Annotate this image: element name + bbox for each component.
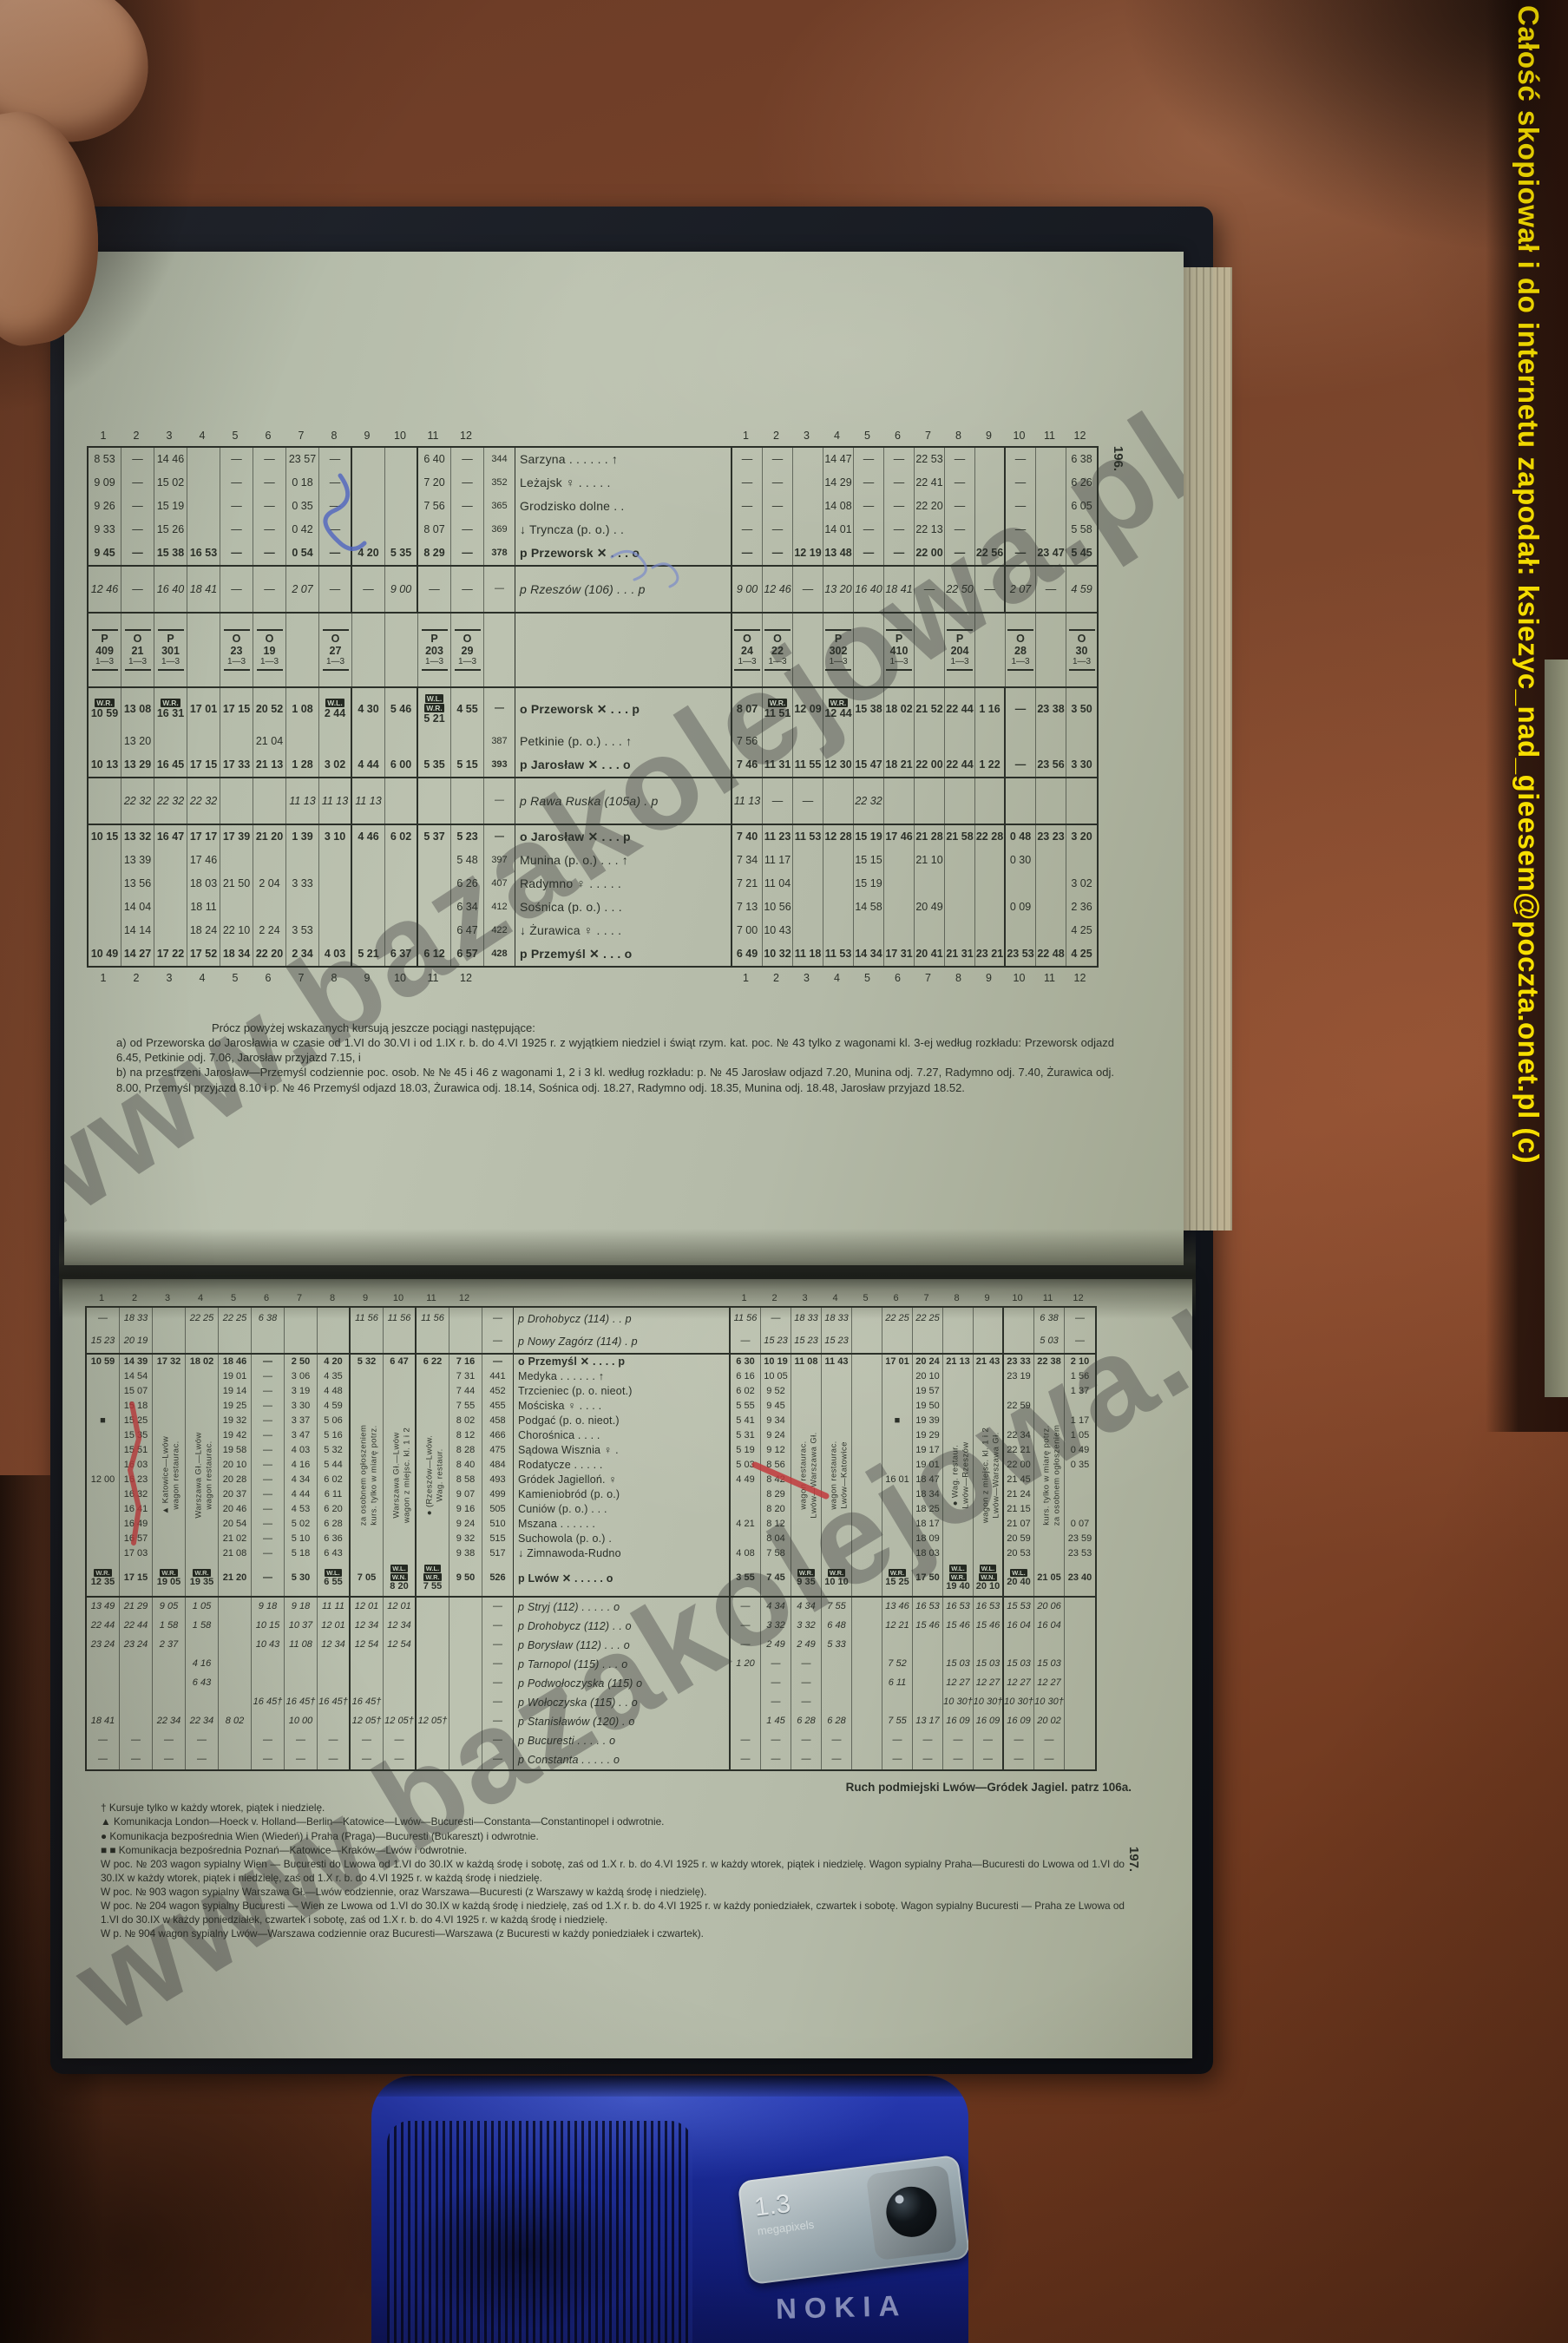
- train-number-cell: P2031—3: [418, 614, 451, 686]
- time-cell: 20 06: [1034, 1598, 1065, 1617]
- time-cell: 0 09: [1006, 896, 1036, 919]
- column-number: 7: [913, 425, 943, 446]
- km-cell: —: [482, 1355, 514, 1369]
- footnote: ■ ■ Komunikacja bezpośrednia Poznań—Kato…: [101, 1844, 1125, 1857]
- station-cell: p Constanta . . . . . o: [514, 1750, 731, 1769]
- train-number-cell: P2041—3: [945, 614, 975, 686]
- wagon-badge: W.R.: [889, 1569, 906, 1577]
- train-number-box: P4101—3: [886, 629, 912, 672]
- time-cell: —: [451, 448, 484, 471]
- time-value: 7 55: [423, 1582, 442, 1592]
- time-cell: [351, 1655, 384, 1674]
- timetable-row: 22 3222 3222 3211 1311 1311 13—p Rawa Ru…: [89, 778, 1097, 824]
- time-cell: [945, 730, 975, 753]
- time-cell: [882, 1502, 913, 1517]
- time-cell: 8 40: [449, 1458, 482, 1473]
- time-cell: [285, 1655, 318, 1674]
- vertical-label: za osobnem ogłoszeniem: [359, 1425, 369, 1526]
- time-cell: —: [351, 1750, 384, 1769]
- time-cell: [945, 849, 975, 872]
- vertical-label: wagon restaurac.: [205, 1441, 214, 1509]
- train-classes: 1—3: [259, 657, 281, 667]
- timetable-197: 123456789101112123456789101112—18 3322 2…: [85, 1291, 1097, 1771]
- time-cell: [793, 471, 823, 495]
- wagon-badge: W.L.: [325, 699, 344, 707]
- time-cell: 8 07: [732, 688, 763, 730]
- time-cell: 5 31: [731, 1428, 761, 1443]
- time-cell: [1065, 1598, 1095, 1617]
- time-cell: [418, 896, 451, 919]
- vertical-label: Lwów—Katowice: [839, 1441, 849, 1509]
- time-cell: 16 45†: [285, 1693, 318, 1712]
- wagon-badge: W.R.: [94, 1569, 111, 1577]
- timetable-row: 15 5119 58—4 035 328 28475Sądowa Wisznia…: [87, 1443, 1095, 1458]
- time-cell: 6 36: [318, 1532, 351, 1546]
- time-cell: 13 46: [882, 1598, 913, 1617]
- train-number-box: O301—3: [1069, 629, 1095, 672]
- time-cell: W.L.W.R.19 40: [943, 1561, 974, 1596]
- time-cell: 5 44: [318, 1458, 351, 1473]
- time-cell: 7 44: [449, 1384, 482, 1399]
- time-cell: [1034, 1384, 1065, 1399]
- time-cell: W.L.6 55: [318, 1561, 351, 1596]
- vertical-label: kurs. tylko w miarę potrz.: [1041, 1425, 1051, 1525]
- time-cell: 7 40: [732, 825, 763, 849]
- time-cell: 22 10: [220, 919, 253, 942]
- time-cell: [253, 778, 286, 824]
- time-cell: —: [791, 1750, 822, 1769]
- time-cell: 7 52: [882, 1655, 913, 1674]
- footnote: W poc. № 903 wagon sypialny Warszawa Gł.…: [101, 1886, 1125, 1899]
- train-number-box: P3011—3: [158, 629, 184, 672]
- time-cell: 22 56: [975, 541, 1006, 565]
- time-cell: —: [253, 495, 286, 518]
- wagon-badge: W.R.: [193, 1569, 210, 1577]
- time-cell: —: [319, 448, 352, 471]
- km-cell: —: [482, 1693, 514, 1712]
- time-cell: 12 46: [89, 567, 121, 612]
- time-cell: [351, 1399, 384, 1414]
- time-cell: —: [913, 1731, 943, 1750]
- vertical-label: Lwów—Warszawa Gł.: [809, 1432, 818, 1518]
- time-cell: 6 38: [1066, 448, 1097, 471]
- time-cell: —: [763, 778, 793, 824]
- time-cell: 15 26: [154, 518, 187, 541]
- train-classes: 1—3: [226, 657, 248, 667]
- time-cell: [884, 778, 915, 824]
- train-category: P: [160, 633, 182, 645]
- time-cell: 17 50: [913, 1561, 943, 1596]
- time-cell: —: [791, 1655, 822, 1674]
- time-cell: —: [822, 1731, 852, 1750]
- time-cell: 22 20: [253, 942, 286, 966]
- nokia-phone[interactable]: 1.3 megapixels NOKIA: [371, 2076, 968, 2343]
- time-cell: 23 53: [1065, 1546, 1095, 1561]
- time-cell: 5 21: [352, 942, 385, 966]
- time-cell: 22 44: [945, 753, 975, 777]
- time-cell: 5 46: [385, 688, 418, 730]
- wagon-badge: W.L.: [390, 1565, 407, 1572]
- timetable-row: W.R.12 3517 15W.R.19 05W.R.19 3521 20—5 …: [87, 1561, 1095, 1596]
- time-cell: —: [761, 1674, 791, 1693]
- time-cell: 2 04: [253, 872, 286, 896]
- time-cell: 8 07: [418, 518, 451, 541]
- time-cell: [153, 1674, 186, 1693]
- station-cell: Podgać (p. o. nieot.): [514, 1414, 731, 1428]
- time-cell: —: [1034, 1750, 1065, 1769]
- timetable-row: 10 5914 3917 3218 0218 46—2 504 205 326 …: [87, 1355, 1095, 1369]
- time-cell: 16 41: [120, 1502, 153, 1517]
- time-cell: 12 05†: [351, 1712, 384, 1731]
- time-cell: [186, 1384, 219, 1399]
- time-cell: [1036, 872, 1066, 896]
- time-cell: 9 18: [252, 1598, 285, 1617]
- time-cell: [882, 1428, 913, 1443]
- timetable-row: ■15 2519 32—3 375 068 02458Podgać (p. o.…: [87, 1414, 1095, 1428]
- timetable-row: 9 09—15 02——0 18—7 20—352Leżajsk ♀ . . .…: [89, 471, 1097, 495]
- footnote: W p. № 904 wagon sypialny Lwów—Warszawa …: [101, 1927, 1125, 1940]
- timetable-row: 17 0321 08—5 186 439 38517↓ Zimnawoda-Ru…: [87, 1546, 1095, 1561]
- time-cell: 19 58: [219, 1443, 252, 1458]
- time-cell: —: [384, 1731, 417, 1750]
- train-number-cell: O241—3: [732, 614, 763, 686]
- km-cell: 412: [484, 896, 515, 919]
- time-cell: 4 08: [731, 1546, 761, 1561]
- table-block: 10 5914 3917 3218 0218 46—2 504 205 326 …: [87, 1355, 1095, 1598]
- time-cell: [1036, 448, 1066, 471]
- time-cell: 15 46: [943, 1617, 974, 1636]
- column-number: 3: [791, 425, 822, 446]
- time-cell: 6 00: [385, 753, 418, 777]
- train-category: O: [259, 633, 281, 645]
- time-cell: [154, 872, 187, 896]
- time-cell: 16 32: [120, 1487, 153, 1502]
- time-cell: 2 24: [253, 919, 286, 942]
- time-cell: [852, 1428, 882, 1443]
- timetable-row: 16 3220 37—4 446 119 07499Kamieniobród (…: [87, 1487, 1095, 1502]
- time-cell: —: [731, 1731, 761, 1750]
- time-cell: —: [252, 1355, 285, 1369]
- time-cell: [384, 1399, 417, 1414]
- time-cell: 18 11: [187, 896, 220, 919]
- time-cell: —: [731, 1598, 761, 1617]
- time-cell: 12 34: [384, 1617, 417, 1636]
- time-cell: [852, 1473, 882, 1487]
- km-cell: 428: [484, 942, 515, 966]
- time-cell: 3 30: [1066, 753, 1097, 777]
- station-cell: Leżajsk ♀ . . . . .: [515, 471, 732, 495]
- time-cell: —: [761, 1693, 791, 1712]
- station-cell: o Przeworsk ✕ . . . p: [515, 688, 732, 730]
- time-cell: W.R.12 44: [823, 688, 854, 730]
- time-cell: 17 03: [120, 1546, 153, 1561]
- time-cell: [87, 1428, 120, 1443]
- time-cell: [854, 919, 884, 942]
- train-number-box: P2031—3: [422, 629, 448, 672]
- time-cell: [186, 1330, 219, 1353]
- time-cell: [219, 1693, 252, 1712]
- column-number: 11: [417, 968, 449, 988]
- time-cell: [286, 896, 319, 919]
- time-cell: [913, 1636, 943, 1655]
- km-cell: 484: [482, 1458, 514, 1473]
- time-cell: [220, 730, 253, 753]
- time-cell: [417, 1546, 449, 1561]
- time-cell: 4 53: [285, 1502, 318, 1517]
- time-cell: [186, 1546, 219, 1561]
- time-cell: 3 55: [731, 1561, 761, 1596]
- time-cell: 4 44: [285, 1487, 318, 1502]
- time-cell: 22 48: [1036, 942, 1066, 966]
- time-cell: 21 04: [253, 730, 286, 753]
- time-cell: 7 21: [732, 872, 763, 896]
- time-cell: [882, 1487, 913, 1502]
- time-cell: [89, 919, 121, 942]
- time-cell: 21 20: [253, 825, 286, 849]
- time-cell: [943, 1384, 974, 1399]
- time-cell: [945, 778, 975, 824]
- time-cell: 3 20: [1066, 825, 1097, 849]
- time-cell: 2 10: [1065, 1355, 1095, 1369]
- station-cell: Mszana . . . . . .: [514, 1517, 731, 1532]
- timetable-row: 16 4120 46—4 536 209 16505Cuniów (p. o.)…: [87, 1502, 1095, 1517]
- time-cell: [385, 778, 418, 824]
- time-cell: [418, 919, 451, 942]
- train-category: O: [226, 633, 248, 645]
- spacer: [484, 614, 515, 686]
- time-cell: 23 19: [1004, 1369, 1034, 1384]
- time-cell: 21 28: [915, 825, 945, 849]
- column-number: 2: [761, 968, 791, 988]
- time-cell: [763, 730, 793, 753]
- train-number-box: P2041—3: [947, 629, 973, 672]
- time-cell: 16 53: [913, 1598, 943, 1617]
- time-cell: 15 19: [854, 825, 884, 849]
- time-value: 8 20: [390, 1582, 408, 1592]
- station-cell: p Wołoczyska (115) . . o: [514, 1693, 731, 1712]
- time-cell: [153, 1369, 186, 1384]
- time-cell: [882, 1517, 913, 1532]
- time-cell: 16 04: [1004, 1617, 1034, 1636]
- time-cell: [974, 1532, 1004, 1546]
- km-cell: —: [482, 1655, 514, 1674]
- time-cell: [318, 1330, 351, 1353]
- time-cell: [352, 872, 385, 896]
- column-numbers-row: 123456789101112123456789101112: [87, 968, 1099, 988]
- time-cell: —: [945, 518, 975, 541]
- column-number: 12: [449, 425, 482, 446]
- time-cell: —: [121, 495, 154, 518]
- time-cell: [852, 1330, 882, 1353]
- time-cell: —: [153, 1731, 186, 1750]
- train-number: 21: [127, 645, 149, 657]
- timetable-grid: —18 3322 2522 256 3811 5611 5611 56—p Dr…: [85, 1306, 1097, 1771]
- time-cell: [87, 1517, 120, 1532]
- time-cell: [731, 1674, 761, 1693]
- wagon-badge: W.L.: [980, 1565, 996, 1572]
- time-value: 11 51: [764, 708, 791, 719]
- time-cell: [915, 919, 945, 942]
- station-cell: p Podwołoczyska (115) o: [514, 1674, 731, 1693]
- time-cell: —: [252, 1517, 285, 1532]
- vertical-label: Warszawa Gł.—Lwów: [392, 1432, 402, 1518]
- time-cell: 9 18: [285, 1598, 318, 1617]
- time-cell: [417, 1517, 449, 1532]
- time-cell: W.R.12 35: [87, 1561, 120, 1596]
- time-cell: [87, 1384, 120, 1399]
- train-number-box: O281—3: [1007, 629, 1033, 672]
- km-cell: 455: [482, 1399, 514, 1414]
- time-cell: —: [121, 471, 154, 495]
- time-cell: —: [252, 1750, 285, 1769]
- time-cell: [1065, 1617, 1095, 1636]
- time-cell: —: [884, 448, 915, 471]
- time-cell: [89, 872, 121, 896]
- time-cell: —: [1006, 688, 1036, 730]
- time-cell: [854, 730, 884, 753]
- time-cell: 15 25: [120, 1414, 153, 1428]
- time-cell: 23 33: [1004, 1355, 1034, 1369]
- time-cell: 5 32: [318, 1443, 351, 1458]
- time-cell: 14 46: [154, 448, 187, 471]
- column-number: 10: [1004, 425, 1034, 446]
- station-cell: Trzcieniec (p. o. nieot.): [514, 1384, 731, 1399]
- time-cell: 14 14: [121, 919, 154, 942]
- time-cell: —: [319, 541, 352, 565]
- vertical-label: za osobnem ogłoszeniem: [1052, 1425, 1061, 1526]
- km-cell: 393: [484, 753, 515, 777]
- time-cell: 1 37: [1065, 1384, 1095, 1399]
- time-cell: [187, 730, 220, 753]
- time-cell: 11 31: [763, 753, 793, 777]
- time-cell: 16 45: [154, 753, 187, 777]
- train-number-cell: O231—3: [220, 614, 253, 686]
- time-cell: [186, 1532, 219, 1546]
- time-cell: [1065, 1502, 1095, 1517]
- train-category: P: [888, 633, 910, 645]
- time-cell: [882, 1458, 913, 1473]
- time-cell: 10 30†: [1004, 1693, 1034, 1712]
- time-cell: 23 38: [1036, 688, 1066, 730]
- train-number-cell: [854, 614, 884, 686]
- time-cell: 4 46: [352, 825, 385, 849]
- time-cell: [1065, 1674, 1095, 1693]
- time-cell: 16 03: [120, 1458, 153, 1473]
- time-cell: 16 09: [974, 1712, 1004, 1731]
- time-cell: 11 04: [763, 872, 793, 896]
- time-cell: [852, 1369, 882, 1384]
- time-cell: 12 27: [974, 1674, 1004, 1693]
- timetable-196: 1234567891011121234567891011128 53—14 46…: [87, 425, 1099, 988]
- time-cell: 8 02: [219, 1712, 252, 1731]
- time-cell: [449, 1598, 482, 1617]
- time-cell: 14 29: [823, 471, 854, 495]
- time-cell: —: [319, 471, 352, 495]
- time-cell: 19 14: [219, 1384, 252, 1399]
- time-cell: 15 46: [974, 1617, 1004, 1636]
- time-cell: [1065, 1731, 1095, 1750]
- page-197[interactable]: www.bazakolejowa.pl 12345678910111212345…: [62, 1279, 1192, 2058]
- time-cell: [1034, 1399, 1065, 1414]
- time-cell: 12 01: [351, 1598, 384, 1617]
- train-number-cell: [793, 614, 823, 686]
- time-cell: 18 17: [913, 1517, 943, 1532]
- column-number: 11: [1034, 968, 1065, 988]
- phone-top-edge: [371, 2076, 968, 2097]
- time-cell: [943, 1369, 974, 1384]
- train-number-box: O191—3: [257, 629, 283, 672]
- time-cell: 19 01: [913, 1458, 943, 1473]
- time-cell: [822, 1546, 852, 1561]
- time-cell: [285, 1330, 318, 1353]
- time-cell: 15 35: [120, 1428, 153, 1443]
- timetable-row: 16 45†16 45†16 45†16 45†—p Wołoczyska (1…: [87, 1693, 1095, 1712]
- train-number: 29: [456, 645, 479, 657]
- timetable-row: 4 16—p Tarnopol (115) . . . o1 20——7 521…: [87, 1655, 1095, 1674]
- time-cell: [319, 919, 352, 942]
- time-cell: [731, 1502, 761, 1517]
- time-cell: [219, 1674, 252, 1693]
- time-cell: 3 33: [286, 872, 319, 896]
- column-number: 7: [913, 968, 943, 988]
- time-cell: —: [121, 448, 154, 471]
- time-cell: 17 33: [220, 753, 253, 777]
- time-cell: 23 56: [1036, 753, 1066, 777]
- time-cell: [351, 1384, 384, 1399]
- time-cell: 8 20: [761, 1502, 791, 1517]
- time-cell: —: [186, 1750, 219, 1769]
- page-196[interactable]: www.bazakolejowa.pl 12345678910111212345…: [64, 252, 1184, 1265]
- time-cell: 15 51: [120, 1443, 153, 1458]
- wagon-badge: W.L.: [1010, 1569, 1027, 1577]
- time-value: 16 31: [157, 708, 184, 719]
- time-cell: 22 00: [915, 541, 945, 565]
- time-cell: 0 30: [1006, 849, 1036, 872]
- time-cell: 22 38: [1034, 1355, 1065, 1369]
- time-cell: [153, 1399, 186, 1414]
- time-cell: 5 32: [351, 1355, 384, 1369]
- time-cell: [417, 1399, 449, 1414]
- time-cell: 19 32: [219, 1414, 252, 1428]
- time-cell: 13 48: [823, 541, 854, 565]
- time-cell: 16 45†: [351, 1693, 384, 1712]
- vertical-label: Lwów—Warszawa Gł.: [991, 1432, 1001, 1518]
- time-cell: 6 40: [418, 448, 451, 471]
- time-cell: 13 32: [121, 825, 154, 849]
- time-cell: [87, 1546, 120, 1561]
- time-cell: [1004, 1636, 1034, 1655]
- time-cell: 21 29: [120, 1598, 153, 1617]
- time-cell: [319, 896, 352, 919]
- time-cell: [352, 518, 385, 541]
- time-cell: [975, 448, 1006, 471]
- time-cell: [822, 1674, 852, 1693]
- time-cell: 5 06: [318, 1414, 351, 1428]
- time-cell: —: [252, 1487, 285, 1502]
- time-cell: 15 19: [854, 872, 884, 896]
- time-cell: —: [252, 1532, 285, 1546]
- km-cell: 510: [482, 1517, 514, 1532]
- time-cell: [913, 1655, 943, 1674]
- time-cell: —: [285, 1731, 318, 1750]
- time-cell: W.L.W.N.8 20: [384, 1561, 417, 1596]
- time-cell: [852, 1674, 882, 1693]
- time-cell: 16 53: [187, 541, 220, 565]
- time-cell: [1036, 730, 1066, 753]
- time-cell: [451, 778, 484, 824]
- time-cell: [882, 1369, 913, 1384]
- time-cell: —: [854, 448, 884, 471]
